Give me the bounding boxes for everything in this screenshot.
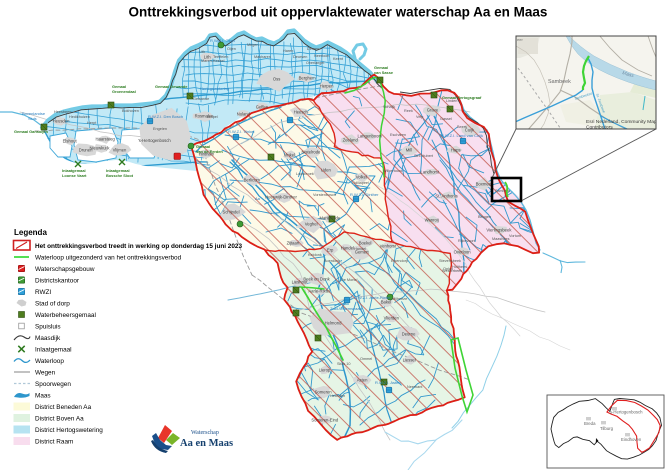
svg-text:R.W.Z.I. Aarle-Rixtel: R.W.Z.I. Aarle-Rixtel — [354, 295, 390, 300]
svg-text:Nuland: Nuland — [237, 112, 251, 117]
svg-text:Handel: Handel — [354, 247, 366, 251]
svg-text:Heeswijk-Dinther: Heeswijk-Dinther — [265, 195, 297, 200]
svg-text:Aarle-Rixtel: Aarle-Rixtel — [308, 289, 330, 294]
svg-text:Neerloon: Neerloon — [314, 54, 329, 58]
svg-text:Wanroij: Wanroij — [425, 218, 439, 223]
svg-text:Linden: Linden — [446, 99, 457, 103]
svg-text:Overloon: Overloon — [454, 250, 472, 255]
svg-text:Langenboom: Langenboom — [358, 134, 383, 139]
svg-text:Empel: Empel — [207, 115, 218, 119]
svg-text:Someren-Eind: Someren-Eind — [311, 418, 338, 423]
svg-text:Boekel: Boekel — [359, 241, 372, 246]
svg-text:Vorstenbosch: Vorstenbosch — [313, 193, 336, 197]
svg-text:Haps: Haps — [451, 148, 461, 153]
svg-text:Vierlingsbeek: Vierlingsbeek — [486, 228, 512, 233]
svg-text:Macharen: Macharen — [254, 55, 271, 59]
svg-text:Nistelrode: Nistelrode — [302, 150, 322, 155]
svg-text:Waterloop: Waterloop — [35, 358, 64, 365]
svg-text:District Raam: District Raam — [35, 438, 73, 445]
svg-text:R.W.Z.I. Dinther: R.W.Z.I. Dinther — [350, 192, 379, 197]
svg-text:R.W.Z.I. Vinkel: R.W.Z.I. Vinkel — [228, 129, 254, 134]
svg-text:Oijen: Oijen — [227, 47, 236, 51]
svg-text:Heesch: Heesch — [294, 110, 309, 115]
svg-text:Venhorst: Venhorst — [380, 244, 397, 249]
svg-text:Legenda: Legenda — [14, 228, 47, 237]
svg-text:RWZI: RWZI — [35, 289, 51, 296]
svg-text:van Sasse: van Sasse — [374, 70, 394, 75]
svg-text:Herpen: Herpen — [320, 84, 334, 89]
svg-text:Asten: Asten — [357, 378, 368, 383]
svg-text:Deursen: Deursen — [293, 55, 307, 59]
svg-text:Stevensbeek: Stevensbeek — [439, 259, 461, 263]
svg-text:Groenendaal: Groenendaal — [112, 89, 136, 94]
svg-text:Hertogswetering: Hertogswetering — [200, 86, 229, 91]
svg-text:Haren: Haren — [283, 49, 293, 53]
svg-text:Vinkel: Vinkel — [284, 153, 295, 158]
svg-text:Districtskantoor: Districtskantoor — [35, 277, 80, 284]
svg-text:Schaijk: Schaijk — [383, 105, 395, 109]
svg-text:Berghem: Berghem — [299, 76, 317, 81]
svg-text:Tilburg: Tilburg — [600, 426, 614, 431]
svg-text:Zijtaart: Zijtaart — [287, 241, 301, 246]
svg-text:Vortum: Vortum — [509, 234, 521, 238]
svg-text:Erp: Erp — [327, 248, 334, 253]
svg-text:Bakel: Bakel — [381, 300, 392, 305]
svg-text:Gemaal Gansoijen: Gemaal Gansoijen — [14, 129, 49, 134]
svg-text:Volkel: Volkel — [356, 175, 367, 180]
svg-text:Gassel: Gassel — [440, 117, 452, 121]
svg-text:Aa en Maas: Aa en Maas — [180, 438, 233, 449]
svg-text:Sluis: Sluis — [28, 116, 37, 121]
svg-text:Maas: Maas — [35, 392, 51, 399]
svg-text:eer: eer — [517, 37, 523, 42]
svg-text:Sambeek: Sambeek — [495, 189, 510, 193]
svg-text:Nieuwkuijk: Nieuwkuijk — [90, 146, 111, 151]
svg-text:Gewande: Gewande — [193, 97, 209, 101]
svg-text:Herpt: Herpt — [87, 121, 97, 125]
svg-text:Beers: Beers — [457, 125, 467, 129]
svg-text:Maashees: Maashees — [492, 237, 510, 241]
svg-text:Heesbeen: Heesbeen — [54, 110, 71, 114]
svg-text:Engelen: Engelen — [153, 127, 167, 131]
svg-text:Spoorwegen: Spoorwegen — [35, 381, 71, 388]
svg-text:Wilbertoord: Wilbertoord — [383, 169, 402, 173]
svg-text:Westerbeek: Westerbeek — [442, 269, 462, 273]
svg-text:Reek: Reek — [404, 109, 413, 113]
svg-text:Berlicum: Berlicum — [244, 178, 261, 183]
svg-text:Vlijmen: Vlijmen — [113, 148, 127, 153]
svg-text:Heusden: Heusden — [330, 394, 345, 398]
svg-text:Deurne: Deurne — [402, 332, 416, 337]
svg-text:Neerkant: Neerkant — [407, 385, 423, 389]
svg-text:Sluis 10: Sluis 10 — [337, 362, 351, 366]
svg-text:Mill: Mill — [406, 148, 412, 153]
svg-text:'s-Hertogenbosch: 's-Hertogenbosch — [609, 410, 643, 415]
svg-text:Schijndel: Schijndel — [223, 210, 240, 215]
svg-text:Teeffelen: Teeffelen — [213, 55, 228, 59]
svg-text:'s-Hertogenbosch: 's-Hertogenbosch — [138, 138, 171, 143]
svg-text:Waterbeheersgemaal: Waterbeheersgemaal — [35, 312, 96, 319]
svg-text:St. Anthonis: St. Anthonis — [435, 194, 457, 199]
svg-text:Vlierden: Vlierden — [384, 316, 400, 321]
svg-text:Landhorst: Landhorst — [421, 170, 440, 175]
svg-text:Holthees: Holthees — [452, 265, 467, 269]
svg-text:Mariaheide: Mariaheide — [320, 216, 341, 221]
svg-text:R.W.Z.I. Den Bosch: R.W.Z.I. Den Bosch — [148, 114, 183, 119]
svg-text:Velp: Velp — [416, 115, 423, 119]
svg-text:Sint Hubert: Sint Hubert — [414, 154, 434, 158]
svg-text:Aa: Aa — [255, 196, 261, 201]
svg-text:Rijkevoort: Rijkevoort — [458, 239, 476, 243]
svg-text:Stad of dorp: Stad of dorp — [35, 300, 70, 307]
svg-text:R.W.Z.I. Asten: R.W.Z.I. Asten — [375, 380, 401, 385]
svg-text:Escharen: Escharen — [390, 133, 406, 137]
svg-text:Milheeze: Milheeze — [392, 297, 407, 301]
svg-text:Spuisluis: Spuisluis — [35, 323, 61, 330]
svg-text:Lieshout: Lieshout — [292, 280, 309, 285]
svg-text:Esri Nederland, Community Map: Esri Nederland, Community Map — [586, 119, 657, 125]
svg-text:Loosbroek: Loosbroek — [296, 172, 314, 176]
svg-text:Waterschapsgebouw: Waterschapsgebouw — [35, 266, 95, 273]
svg-text:Helmond: Helmond — [325, 321, 342, 326]
svg-text:Hedikhuizen: Hedikhuizen — [69, 115, 90, 119]
svg-text:Elshout: Elshout — [63, 139, 78, 144]
svg-text:Waterloop uitgezonderd van het: Waterloop uitgezonderd van het onttrekki… — [35, 254, 182, 261]
svg-text:Het onttrekkingsverbod treedt: Het onttrekkingsverbod treedt in werking… — [35, 243, 242, 250]
svg-text:Odiliapeel: Odiliapeel — [352, 181, 369, 185]
svg-text:R.W.Z.I. Land van Cuijk: R.W.Z.I. Land van Cuijk — [441, 133, 483, 138]
svg-text:Lierop: Lierop — [319, 368, 331, 373]
svg-text:Bossche Sloot: Bossche Sloot — [106, 173, 134, 178]
svg-text:Bokhoven: Bokhoven — [122, 109, 139, 113]
svg-text:Ommel: Ommel — [360, 357, 372, 361]
svg-text:Wegen: Wegen — [35, 369, 56, 376]
svg-text:Zuid-Willemsvaart: Zuid-Willemsvaart — [330, 306, 363, 311]
svg-text:Maasdijk: Maasdijk — [35, 335, 61, 342]
svg-text:Geffen: Geffen — [256, 105, 269, 110]
svg-text:Oss: Oss — [273, 77, 280, 82]
svg-text:Waterschap: Waterschap — [191, 430, 219, 436]
svg-text:Haarsteeg: Haarsteeg — [96, 137, 116, 142]
svg-text:Liessel: Liessel — [403, 358, 416, 363]
svg-text:Demen: Demen — [307, 47, 319, 51]
svg-text:Keent: Keent — [333, 57, 344, 61]
svg-text:Lith: Lith — [199, 50, 205, 54]
svg-text:Boxmeer: Boxmeer — [476, 182, 493, 187]
svg-text:Elsendorp: Elsendorp — [391, 259, 408, 263]
svg-text:Zeeland: Zeeland — [343, 138, 359, 143]
svg-text:Boerdonk: Boerdonk — [324, 259, 340, 263]
svg-text:Van de Eerden: Van de Eerden — [196, 149, 223, 154]
svg-text:Maren-Kessel: Maren-Kessel — [201, 59, 225, 63]
svg-text:Gemaal Gewande: Gemaal Gewande — [155, 84, 188, 89]
svg-text:Heusden: Heusden — [53, 119, 70, 124]
svg-text:De Mortel: De Mortel — [341, 278, 358, 282]
svg-text:Megen: Megen — [247, 43, 259, 47]
svg-text:Uden: Uden — [321, 168, 332, 173]
svg-text:District Beneden Aa: District Beneden Aa — [35, 404, 92, 411]
svg-text:Handel: Handel — [341, 246, 354, 251]
svg-text:Breda: Breda — [584, 421, 596, 426]
svg-text:Beek en Donk: Beek en Donk — [303, 277, 330, 282]
svg-text:Keldonk: Keldonk — [308, 253, 322, 257]
svg-text:R.W.Z.I. Oijen: R.W.Z.I. Oijen — [210, 38, 235, 43]
svg-text:Grave: Grave — [427, 108, 439, 113]
svg-text:Sambeek: Sambeek — [548, 79, 571, 85]
svg-text:Veghel: Veghel — [305, 222, 318, 227]
svg-text:Overlangel: Overlangel — [306, 61, 325, 65]
svg-text:District Boven Aa: District Boven Aa — [35, 415, 84, 422]
svg-text:District Hertogswetering: District Hertogswetering — [35, 427, 103, 434]
svg-text:Loonse Vaart: Loonse Vaart — [62, 173, 87, 178]
svg-text:Eindhoven: Eindhoven — [621, 437, 642, 442]
svg-text:Beugen: Beugen — [478, 215, 491, 219]
svg-text:Onttrekkingsverbod uit oppervl: Onttrekkingsverbod uit oppervlaktewater … — [129, 5, 548, 20]
svg-text:Inlaatgemaal: Inlaatgemaal — [35, 346, 72, 353]
